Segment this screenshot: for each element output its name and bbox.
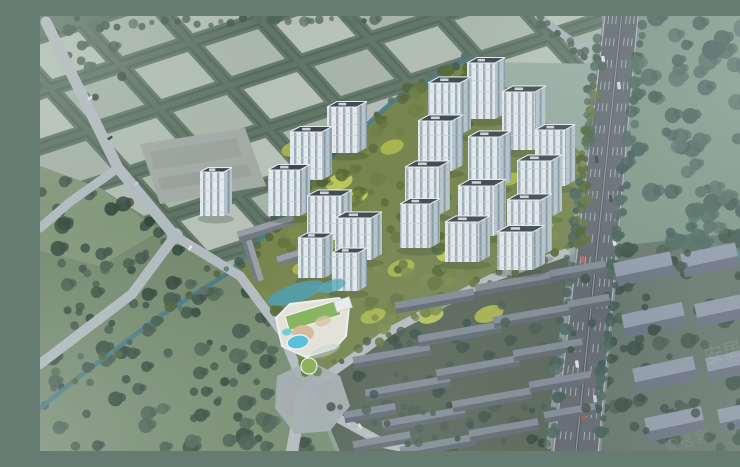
generated-scene: 安居客安居客安居客 bbox=[40, 16, 740, 451]
aerial-render-image: 安居客安居客安居客 Aerial architectural rendering… bbox=[40, 16, 740, 451]
aerial-city-render-canvas: 安居客安居客安居客 bbox=[40, 16, 740, 451]
